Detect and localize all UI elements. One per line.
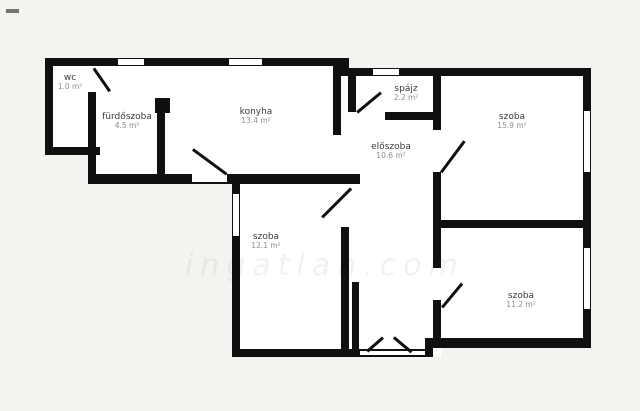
window-top-pantry <box>372 68 400 76</box>
wall-wc-right <box>88 92 96 184</box>
room-area: 15.9 m² <box>472 122 552 131</box>
wall-room-br-left-upper <box>433 228 441 268</box>
wall-pantry-left <box>348 68 356 112</box>
wall-hall-left-lower <box>352 282 359 357</box>
room-label-wc: wc 1.0 m² <box>46 73 94 92</box>
wall-top-5 <box>400 68 591 76</box>
wall-top-1 <box>45 58 117 66</box>
window-right-room-br <box>583 247 591 310</box>
room-area: 10.6 m² <box>351 152 431 161</box>
window-top-bathroom <box>117 58 145 66</box>
wall-bottom-step <box>425 338 433 357</box>
wall-top-2 <box>145 58 228 66</box>
room-area: 11.2 m² <box>481 301 561 310</box>
kitchen-door-sill <box>192 182 227 184</box>
wall-right-middle <box>433 220 591 228</box>
scan-artifact <box>6 9 19 13</box>
wall-right-bottom <box>425 338 591 348</box>
room-area: 12.1 m² <box>226 242 306 251</box>
wall-room-ml-right <box>341 227 349 357</box>
window-right-room-tr <box>583 110 591 173</box>
room-area: 13.4 m² <box>216 117 296 126</box>
room-label-szoba-middle-left: szoba 12.1 m² <box>226 232 306 251</box>
wall-kitchen-bottom-2 <box>227 174 360 184</box>
wall-pillar-bath <box>155 98 170 113</box>
room-label-spajz: spájz 2.2 m² <box>366 84 446 103</box>
window-left-room-ml <box>232 193 240 237</box>
wall-kitchen-right <box>333 58 341 135</box>
room-label-szoba-top-right: szoba 15.9 m² <box>472 112 552 131</box>
watermark: ingatlan.com <box>185 248 465 283</box>
window-top-kitchen <box>228 58 263 66</box>
room-label-furdoszoba: fürdőszoba 4.5 m² <box>87 112 167 131</box>
room-label-eloszoba: előszoba 10.6 m² <box>351 142 431 161</box>
room-area: 2.2 m² <box>366 94 446 103</box>
floor-plan: ingatlan.com wc 1.0 m² <box>0 0 640 411</box>
room-area: 4.5 m² <box>87 122 167 131</box>
wall-kitchen-bottom-1 <box>88 174 192 184</box>
room-label-szoba-bottom-right: szoba 11.2 m² <box>481 291 561 310</box>
wall-room-br-left-lower <box>433 300 441 348</box>
wall-room-tr-left-lower <box>433 172 441 228</box>
room-label-konyha: konyha 13.4 m² <box>216 107 296 126</box>
room-area: 1.0 m² <box>46 83 94 92</box>
